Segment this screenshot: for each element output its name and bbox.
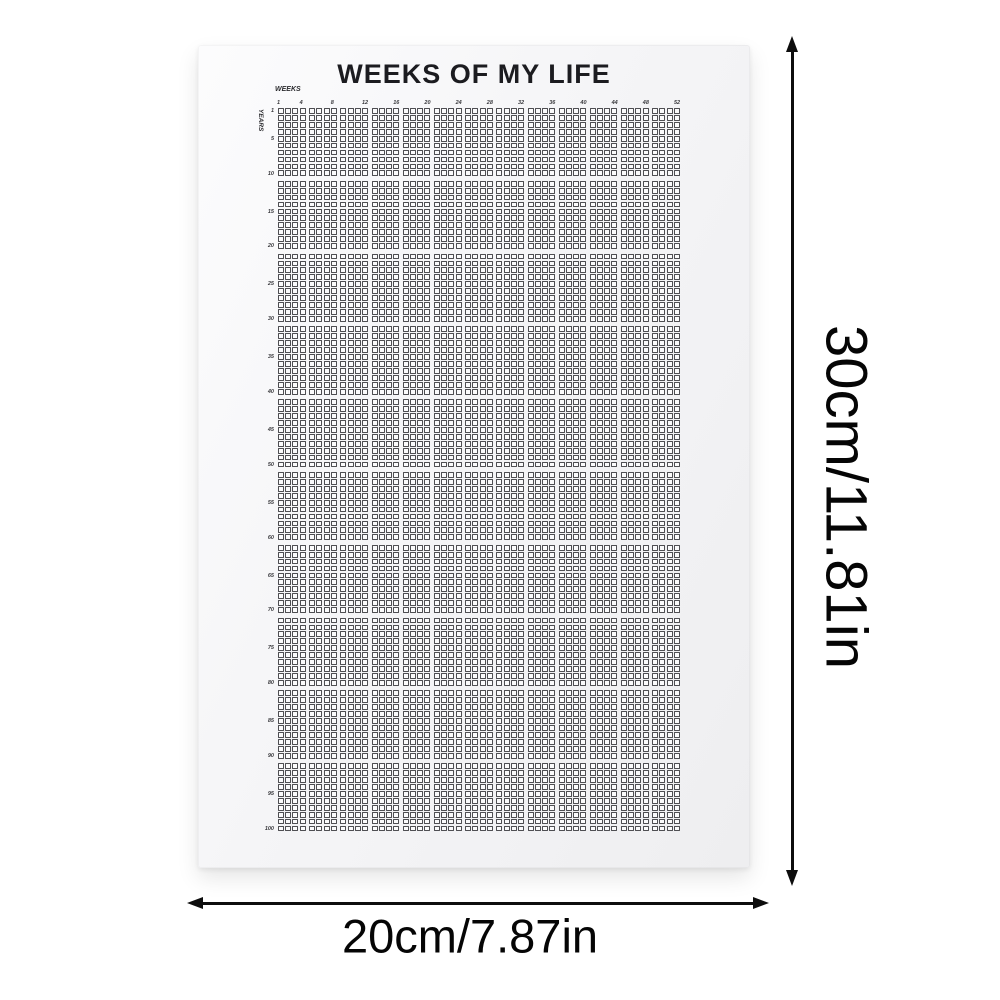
- week-cell: [393, 406, 399, 412]
- week-cell: [441, 593, 447, 599]
- week-cell: [285, 500, 291, 506]
- week-cell: [372, 593, 378, 599]
- week-cell: [573, 215, 579, 221]
- week-cell: [417, 739, 423, 745]
- week-cell: [355, 389, 361, 395]
- week-cell: [573, 375, 579, 381]
- week-cell: [292, 261, 298, 267]
- week-cell: [528, 375, 534, 381]
- week-cell: [300, 521, 306, 527]
- week-block: [309, 108, 337, 177]
- week-cell: [487, 659, 493, 665]
- week-cell: [511, 157, 517, 163]
- week-cell: [518, 704, 524, 710]
- week-cell: [372, 600, 378, 606]
- week-cell: [528, 157, 534, 163]
- week-cell: [393, 559, 399, 565]
- week-cell: [472, 625, 478, 631]
- week-cell: [504, 514, 510, 520]
- week-cell: [372, 739, 378, 745]
- week-cell: [355, 399, 361, 405]
- week-cell: [410, 579, 416, 585]
- week-cell: [441, 420, 447, 426]
- week-cell: [448, 521, 454, 527]
- week-cell: [309, 164, 315, 170]
- week-cell: [324, 326, 330, 332]
- week-cell: [362, 711, 368, 717]
- week-cell: [324, 607, 330, 613]
- week-cell: [456, 725, 462, 731]
- week-cell: [496, 645, 502, 651]
- week-cell: [403, 420, 409, 426]
- week-block: [621, 181, 649, 250]
- week-cell: [635, 202, 641, 208]
- week-cell: [487, 354, 493, 360]
- week-cell: [386, 753, 392, 759]
- week-cell: [448, 600, 454, 606]
- week-cell: [393, 122, 399, 128]
- week-cell: [566, 486, 572, 492]
- week-cell: [331, 493, 337, 499]
- week-cell: [403, 805, 409, 811]
- week-cell: [504, 254, 510, 260]
- week-cell: [480, 666, 486, 672]
- week-block: [496, 618, 524, 687]
- week-cell: [417, 195, 423, 201]
- week-cell: [403, 129, 409, 135]
- week-cell: [448, 638, 454, 644]
- week-cell: [456, 645, 462, 651]
- week-cell: [417, 659, 423, 665]
- week-cell: [667, 579, 673, 585]
- week-block: [340, 545, 368, 614]
- week-cell: [659, 170, 665, 176]
- week-cell: [566, 143, 572, 149]
- week-cell: [417, 420, 423, 426]
- week-cell: [456, 267, 462, 273]
- week-cell: [386, 638, 392, 644]
- week-cell: [566, 122, 572, 128]
- week-cell: [604, 486, 610, 492]
- week-cell: [393, 618, 399, 624]
- week-cell: [292, 462, 298, 468]
- week-cell: [362, 638, 368, 644]
- week-cell: [316, 739, 322, 745]
- week-cell: [611, 593, 617, 599]
- week-cell: [511, 420, 517, 426]
- week-cell: [590, 746, 596, 752]
- week-cell: [292, 441, 298, 447]
- week-cell: [643, 236, 649, 242]
- week-cell: [542, 326, 548, 332]
- week-cell: [635, 115, 641, 121]
- week-cell: [456, 236, 462, 242]
- week-cell: [652, 181, 658, 187]
- week-cell: [434, 188, 440, 194]
- week-cell: [324, 243, 330, 249]
- week-cell: [316, 261, 322, 267]
- week-cell: [604, 170, 610, 176]
- week-cell: [542, 631, 548, 637]
- week-cell: [417, 718, 423, 724]
- week-cell: [355, 638, 361, 644]
- week-cell: [285, 302, 291, 308]
- week-cell: [487, 652, 493, 658]
- week-cell: [309, 406, 315, 412]
- week-cell: [285, 209, 291, 215]
- week-cell: [355, 122, 361, 128]
- week-cell: [355, 181, 361, 187]
- week-cell: [652, 479, 658, 485]
- week-cell: [465, 500, 471, 506]
- week-cell: [549, 209, 555, 215]
- week-cell: [379, 382, 385, 388]
- week-cell: [566, 586, 572, 592]
- week-cell: [292, 382, 298, 388]
- week-cell: [362, 777, 368, 783]
- week-cell: [285, 406, 291, 412]
- week-cell: [580, 455, 586, 461]
- week-cell: [386, 347, 392, 353]
- week-cell: [324, 413, 330, 419]
- week-cell: [379, 770, 385, 776]
- week-cell: [316, 763, 322, 769]
- week-cell: [621, 129, 627, 135]
- week-cell: [528, 267, 534, 273]
- week-cell: [278, 333, 284, 339]
- week-cell: [674, 600, 680, 606]
- week-cell: [331, 455, 337, 461]
- week-cell: [559, 188, 565, 194]
- week-cell: [487, 215, 493, 221]
- week-cell: [417, 295, 423, 301]
- week-cell: [379, 493, 385, 499]
- week-cell: [441, 521, 447, 527]
- week-cell: [379, 507, 385, 513]
- week-cell: [386, 354, 392, 360]
- week-cell: [285, 181, 291, 187]
- week-cell: [597, 354, 603, 360]
- week-cell: [300, 593, 306, 599]
- week-cell: [309, 354, 315, 360]
- week-cell: [659, 267, 665, 273]
- week-cell: [410, 434, 416, 440]
- week-cell: [278, 420, 284, 426]
- week-cell: [465, 215, 471, 221]
- week-cell: [285, 631, 291, 637]
- week-cell: [340, 718, 346, 724]
- week-cell: [590, 579, 596, 585]
- week-cell: [496, 493, 502, 499]
- week-block: [590, 618, 618, 687]
- week-cell: [362, 361, 368, 367]
- week-cell: [441, 254, 447, 260]
- week-cell: [331, 316, 337, 322]
- week-cell: [331, 763, 337, 769]
- week-cell: [417, 427, 423, 433]
- week-cell: [635, 368, 641, 374]
- week-cell: [410, 791, 416, 797]
- week-cell: [628, 420, 634, 426]
- week-cell: [604, 559, 610, 565]
- week-cell: [410, 718, 416, 724]
- week-cell: [487, 267, 493, 273]
- week-cell: [566, 472, 572, 478]
- week-cell: [348, 607, 354, 613]
- week-cell: [448, 281, 454, 287]
- week-cell: [496, 420, 502, 426]
- week-cell: [559, 368, 565, 374]
- week-cell: [403, 479, 409, 485]
- week-cell: [278, 136, 284, 142]
- week-cell: [403, 309, 409, 315]
- week-cell: [504, 108, 510, 114]
- week-cell: [285, 222, 291, 228]
- week-cell: [621, 573, 627, 579]
- week-cell: [316, 462, 322, 468]
- week-cell: [417, 254, 423, 260]
- week-cell: [403, 188, 409, 194]
- week-cell: [628, 545, 634, 551]
- week-cell: [372, 448, 378, 454]
- week-cell: [300, 586, 306, 592]
- week-cell: [518, 316, 524, 322]
- week-cell: [496, 195, 502, 201]
- week-cell: [424, 413, 430, 419]
- week-cell: [324, 150, 330, 156]
- week-cell: [292, 566, 298, 572]
- week-cell: [635, 108, 641, 114]
- week-cell: [379, 188, 385, 194]
- week-cell: [386, 209, 392, 215]
- week-cell: [674, 164, 680, 170]
- week-cell: [674, 188, 680, 194]
- week-cell: [424, 486, 430, 492]
- week-cell: [674, 434, 680, 440]
- week-cell: [331, 500, 337, 506]
- week-cell: [611, 274, 617, 280]
- week-cell: [417, 115, 423, 121]
- week-cell: [434, 573, 440, 579]
- week-cell: [403, 195, 409, 201]
- week-cell: [542, 427, 548, 433]
- week-cell: [621, 718, 627, 724]
- week-cell: [674, 254, 680, 260]
- week-cell: [386, 673, 392, 679]
- week-cell: [285, 659, 291, 665]
- week-cell: [496, 340, 502, 346]
- week-cell: [424, 732, 430, 738]
- week-cell: [465, 725, 471, 731]
- week-cell: [573, 753, 579, 759]
- week-cell: [434, 618, 440, 624]
- week-cell: [379, 514, 385, 520]
- week-cell: [355, 770, 361, 776]
- week-cell: [278, 625, 284, 631]
- week-cell: [300, 462, 306, 468]
- week-cell: [355, 115, 361, 121]
- week-cell: [659, 115, 665, 121]
- week-cell: [331, 170, 337, 176]
- week-cell: [621, 375, 627, 381]
- week-cell: [316, 573, 322, 579]
- week-cell: [504, 143, 510, 149]
- week-cell: [386, 586, 392, 592]
- week-cell: [643, 718, 649, 724]
- week-cell: [621, 500, 627, 506]
- week-cell: [528, 188, 534, 194]
- week-cell: [559, 316, 565, 322]
- week-cell: [590, 222, 596, 228]
- week-cell: [628, 625, 634, 631]
- week-cell: [362, 368, 368, 374]
- week-cell: [316, 514, 322, 520]
- week-cell: [549, 638, 555, 644]
- week-cell: [324, 462, 330, 468]
- week-cell: [340, 545, 346, 551]
- week-cell: [448, 552, 454, 558]
- week-cell: [324, 600, 330, 606]
- week-cell: [590, 375, 596, 381]
- week-cell: [674, 340, 680, 346]
- week-cell: [604, 673, 610, 679]
- week-cell: [403, 267, 409, 273]
- week-cell: [278, 302, 284, 308]
- week-cell: [518, 427, 524, 433]
- week-cell: [580, 500, 586, 506]
- week-cell: [372, 188, 378, 194]
- week-cell: [487, 406, 493, 412]
- week-cell: [621, 267, 627, 273]
- week-cell: [480, 448, 486, 454]
- week-cell: [542, 164, 548, 170]
- week-cell: [300, 427, 306, 433]
- week-cell: [611, 170, 617, 176]
- week-cell: [393, 493, 399, 499]
- week-cell: [340, 354, 346, 360]
- week-cell: [456, 181, 462, 187]
- week-cell: [511, 181, 517, 187]
- week-cell: [511, 552, 517, 558]
- week-cell: [480, 593, 486, 599]
- week-cell: [441, 236, 447, 242]
- week-cell: [511, 607, 517, 613]
- week-cell: [652, 326, 658, 332]
- week-cell: [504, 164, 510, 170]
- week-cell: [597, 243, 603, 249]
- week-cell: [424, 115, 430, 121]
- week-cell: [441, 552, 447, 558]
- week-cell: [456, 202, 462, 208]
- week-cell: [504, 455, 510, 461]
- week-cell: [667, 129, 673, 135]
- week-cell: [386, 455, 392, 461]
- week-cell: [410, 493, 416, 499]
- week-cell: [487, 413, 493, 419]
- week-cell: [417, 566, 423, 572]
- week-cell: [285, 673, 291, 679]
- week-cell: [604, 718, 610, 724]
- week-cell: [559, 573, 565, 579]
- week-cell: [480, 534, 486, 540]
- week-block: [590, 181, 618, 250]
- week-cell: [300, 448, 306, 454]
- week-cell: [324, 711, 330, 717]
- week-cell: [355, 631, 361, 637]
- week-cell: [580, 746, 586, 752]
- week-cell: [559, 333, 565, 339]
- week-cell: [386, 309, 392, 315]
- week-cell: [424, 406, 430, 412]
- week-cell: [424, 455, 430, 461]
- week-cell: [535, 666, 541, 672]
- week-cell: [285, 472, 291, 478]
- week-cell: [393, 236, 399, 242]
- week-cell: [504, 673, 510, 679]
- week-cell: [417, 534, 423, 540]
- week-cell: [340, 434, 346, 440]
- week-cell: [542, 108, 548, 114]
- week-cell: [362, 534, 368, 540]
- week-cell: [410, 316, 416, 322]
- week-cell: [410, 361, 416, 367]
- week-cell: [331, 732, 337, 738]
- week-cell: [590, 704, 596, 710]
- week-cell: [674, 420, 680, 426]
- week-cell: [372, 136, 378, 142]
- week-cell: [635, 333, 641, 339]
- week-cell: [535, 288, 541, 294]
- week-cell: [410, 136, 416, 142]
- week-cell: [472, 274, 478, 280]
- week-cell: [285, 136, 291, 142]
- week-cell: [372, 472, 378, 478]
- week-cell: [441, 718, 447, 724]
- week-cell: [403, 434, 409, 440]
- week-cell: [487, 399, 493, 405]
- week-cell: [410, 552, 416, 558]
- week-cell: [496, 527, 502, 533]
- week-cell: [441, 288, 447, 294]
- week-cell: [652, 486, 658, 492]
- week-cell: [549, 732, 555, 738]
- week-cell: [566, 406, 572, 412]
- week-cell: [472, 552, 478, 558]
- week-cell: [424, 170, 430, 176]
- week-cell: [549, 254, 555, 260]
- week-cell: [604, 638, 610, 644]
- week-cell: [621, 448, 627, 454]
- week-cell: [573, 222, 579, 228]
- week-cell: [331, 441, 337, 447]
- week-cell: [580, 704, 586, 710]
- week-cell: [340, 753, 346, 759]
- week-cell: [549, 129, 555, 135]
- week-cell: [643, 618, 649, 624]
- week-cell: [518, 711, 524, 717]
- week-cell: [456, 573, 462, 579]
- week-cell: [372, 826, 378, 832]
- week-cell: [573, 652, 579, 658]
- week-cell: [309, 295, 315, 301]
- week-cell: [597, 157, 603, 163]
- week-cell: [355, 215, 361, 221]
- week-cell: [300, 181, 306, 187]
- week-cell: [316, 202, 322, 208]
- week-cell: [590, 479, 596, 485]
- week-cell: [549, 222, 555, 228]
- week-cell: [659, 593, 665, 599]
